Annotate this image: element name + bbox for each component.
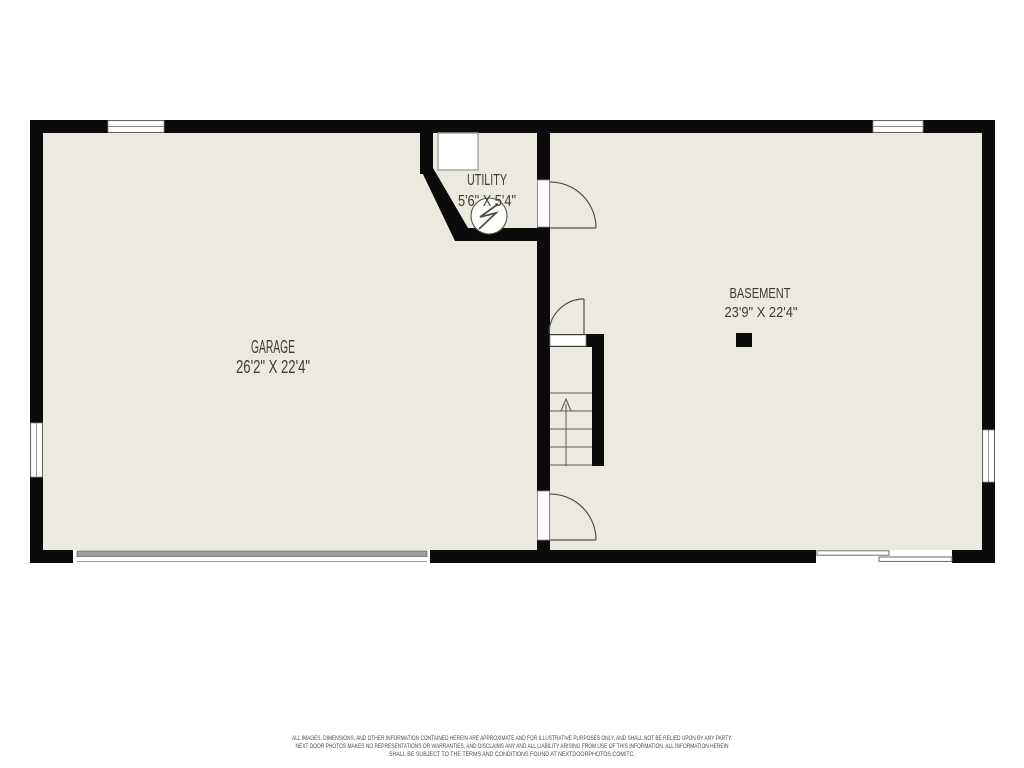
- sliding-door-icon: [816, 550, 952, 563]
- floorplan-page: GARAGE 26'2" X 22'4" UTILITY 5'6" X 5'4"…: [0, 0, 1024, 768]
- disclaimer: ALL IMAGES, DIMENSIONS, AND OTHER INFORM…: [292, 735, 732, 758]
- disclaimer-line-2: NEXT DOOR PHOTOS MAKES NO REPRESENTATION…: [296, 743, 729, 750]
- utility-label: UTILITY: [467, 172, 507, 189]
- wall-left: [30, 120, 43, 563]
- stairs-door-frame: [550, 335, 586, 346]
- wall-top: [30, 120, 995, 133]
- furnace-icon: [438, 133, 478, 170]
- garage-dimensions: 26'2" X 22'4": [236, 357, 310, 377]
- basement-label: BASEMENT: [730, 285, 791, 302]
- wall-stairs-right: [592, 334, 604, 466]
- support-column-icon: [736, 333, 752, 347]
- wall-right: [982, 120, 995, 563]
- garage-door-panel: [77, 551, 427, 557]
- utility-dimensions: 5'6" X 5'4": [458, 193, 516, 210]
- sliding-door-panel-right: [879, 557, 952, 561]
- garage-door-icon: [73, 550, 430, 563]
- garage-label: GARAGE: [251, 337, 295, 357]
- utility-door-frame: [538, 180, 550, 227]
- disclaimer-line-1: ALL IMAGES, DIMENSIONS, AND OTHER INFORM…: [292, 735, 732, 742]
- wall-utility-left: [420, 133, 433, 174]
- disclaimer-line-3: SHALL BE SUBJECT TO THE TERMS AND CONDIT…: [389, 751, 635, 758]
- sliding-door-panel-left: [817, 551, 889, 555]
- garage-basement-door-frame: [538, 491, 550, 540]
- floor-area: [30, 120, 995, 563]
- basement-dimensions: 23'9" X 22'4": [725, 304, 798, 321]
- floorplan-drawing: GARAGE 26'2" X 22'4" UTILITY 5'6" X 5'4"…: [0, 0, 1024, 768]
